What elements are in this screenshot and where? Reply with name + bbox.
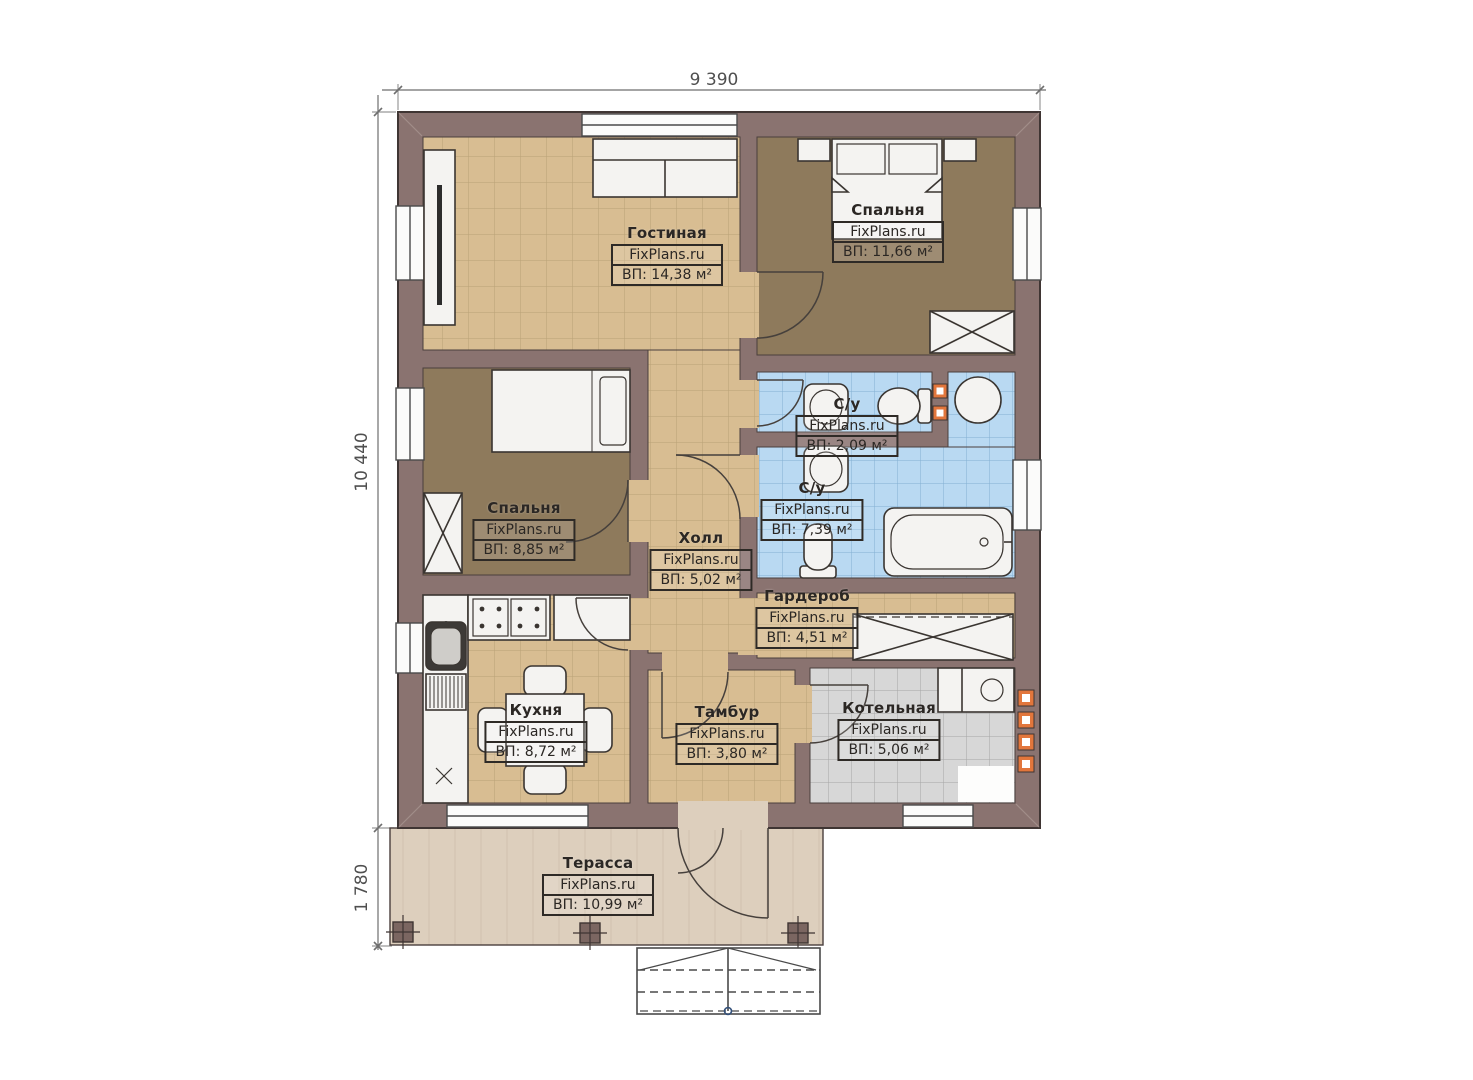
room-area: ВП: 5,02 м² <box>651 571 750 589</box>
room-label-terrace: Терасса FixPlans.ru ВП: 10,99 м² <box>542 854 654 916</box>
window-left-kitchen <box>396 623 424 673</box>
window-bottom-boiler <box>903 805 973 827</box>
single-bed <box>492 370 630 452</box>
room-name: Холл <box>679 529 724 547</box>
brand-watermark: FixPlans.ru <box>839 721 938 741</box>
room-name: С/у <box>834 395 861 413</box>
brand-watermark: FixPlans.ru <box>757 609 856 629</box>
room-name: Спальня <box>487 499 560 517</box>
tv-stand <box>424 150 455 325</box>
room-area: ВП: 4,51 м² <box>757 629 856 647</box>
room-label-living: Гостиная FixPlans.ru ВП: 14,38 м² <box>611 224 723 286</box>
room-label-wc-large: С/у FixPlans.ru ВП: 7,39 м² <box>760 479 863 541</box>
brand-watermark: FixPlans.ru <box>677 725 776 745</box>
room-name: Котельная <box>842 699 936 717</box>
wardrobe-closet-bedroom1 <box>930 311 1014 353</box>
brand-watermark: FixPlans.ru <box>797 417 896 437</box>
room-area: ВП: 2,09 м² <box>797 437 896 455</box>
brand-watermark: FixPlans.ru <box>486 723 585 743</box>
room-area: ВП: 8,72 м² <box>486 743 585 761</box>
brand-watermark: FixPlans.ru <box>474 521 573 541</box>
room-area: ВП: 8,85 м² <box>474 541 573 559</box>
dimension-width: 9 390 <box>690 70 739 90</box>
room-label-boiler: Котельная FixPlans.ru ВП: 5,06 м² <box>837 699 940 761</box>
room-label-hall: Холл FixPlans.ru ВП: 5,02 м² <box>649 529 752 591</box>
room-label-bedroom-1: Спальня FixPlans.ru ВП: 11,66 м² <box>832 201 944 263</box>
room-name: Кухня <box>510 701 563 719</box>
room-area: ВП: 7,39 м² <box>762 521 861 539</box>
wardrobe-closet-bedroom2 <box>424 493 462 573</box>
room-name: Гостиная <box>627 224 707 242</box>
window-right-bedroom1 <box>1013 208 1041 280</box>
brand-watermark: FixPlans.ru <box>834 223 942 243</box>
room-name: Тамбур <box>695 703 760 721</box>
room-label-tambour: Тамбур FixPlans.ru ВП: 3,80 м² <box>675 703 778 765</box>
room-area: ВП: 3,80 м² <box>677 745 776 763</box>
room-name: Гардероб <box>764 587 850 605</box>
room-area: ВП: 11,66 м² <box>834 243 942 261</box>
sofa <box>593 139 737 197</box>
fridge <box>554 595 630 640</box>
dimension-height: 10 440 <box>352 432 372 491</box>
window-bottom-kitchen <box>447 805 588 827</box>
brand-watermark: FixPlans.ru <box>651 551 750 571</box>
brand-watermark: FixPlans.ru <box>613 246 721 266</box>
stove <box>468 595 550 640</box>
room-area: ВП: 14,38 м² <box>613 266 721 284</box>
bathtub <box>884 508 1012 576</box>
wardrobe-closet-large <box>853 614 1013 660</box>
room-label-wc-small: С/у FixPlans.ru ВП: 2,09 м² <box>795 395 898 457</box>
room-label-bedroom-2: Спальня FixPlans.ru ВП: 8,85 м² <box>472 499 575 561</box>
room-area: ВП: 10,99 м² <box>544 896 652 914</box>
water-heater <box>955 377 1001 423</box>
window-left-living <box>396 206 424 280</box>
room-area: ВП: 5,06 м² <box>839 741 938 759</box>
room-name: Спальня <box>851 201 924 219</box>
room-label-wardrobe: Гардероб FixPlans.ru ВП: 4,51 м² <box>755 587 858 649</box>
window-top-living <box>582 114 737 136</box>
window-left-bedroom2 <box>396 388 424 460</box>
room-label-kitchen: Кухня FixPlans.ru ВП: 8,72 м² <box>484 701 587 763</box>
floor-plan-page: Гостиная FixPlans.ru ВП: 14,38 м² Спальн… <box>0 0 1473 1080</box>
room-name: С/у <box>799 479 826 497</box>
brand-watermark: FixPlans.ru <box>544 876 652 896</box>
entrance-stairs <box>637 948 820 1015</box>
room-name: Терасса <box>563 854 634 872</box>
kitchen-sink <box>426 621 466 670</box>
dimension-terrace-depth: 1 780 <box>352 864 372 913</box>
floor-hall <box>648 350 740 653</box>
brand-watermark: FixPlans.ru <box>762 501 861 521</box>
window-right-bathroom <box>1013 460 1041 530</box>
